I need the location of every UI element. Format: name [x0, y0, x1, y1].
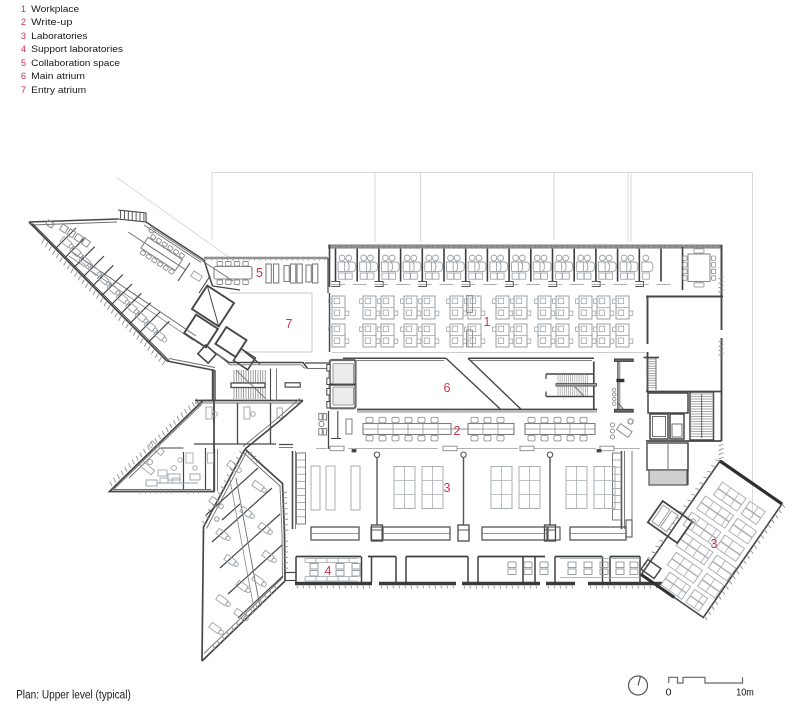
svg-text:Write-up: Write-up — [31, 17, 72, 27]
svg-text:Entry atrium: Entry atrium — [31, 85, 86, 95]
svg-text:10m: 10m — [736, 687, 754, 699]
svg-text:0: 0 — [666, 687, 672, 699]
svg-text:Laboratories: Laboratories — [31, 31, 88, 41]
svg-text:Collaboration space: Collaboration space — [31, 58, 120, 68]
svg-text:Workplace: Workplace — [31, 4, 79, 14]
svg-text:6: 6 — [444, 381, 451, 395]
svg-text:6: 6 — [21, 71, 26, 81]
svg-text:7: 7 — [286, 317, 293, 331]
svg-text:3: 3 — [444, 481, 451, 495]
svg-text:2: 2 — [454, 424, 461, 438]
svg-text:4: 4 — [325, 564, 332, 578]
svg-text:3: 3 — [21, 31, 26, 41]
svg-text:4: 4 — [21, 44, 26, 54]
svg-text:1: 1 — [21, 4, 26, 14]
svg-text:5: 5 — [256, 266, 263, 280]
svg-text:Plan: Upper level (typical): Plan: Upper level (typical) — [16, 687, 131, 701]
svg-text:5: 5 — [21, 58, 26, 68]
svg-text:1: 1 — [484, 315, 491, 329]
svg-text:Support laboratories: Support laboratories — [31, 44, 123, 54]
svg-text:7: 7 — [21, 85, 26, 95]
svg-text:3: 3 — [711, 537, 718, 551]
svg-text:Main atrium: Main atrium — [31, 71, 85, 81]
svg-text:2: 2 — [21, 17, 26, 27]
